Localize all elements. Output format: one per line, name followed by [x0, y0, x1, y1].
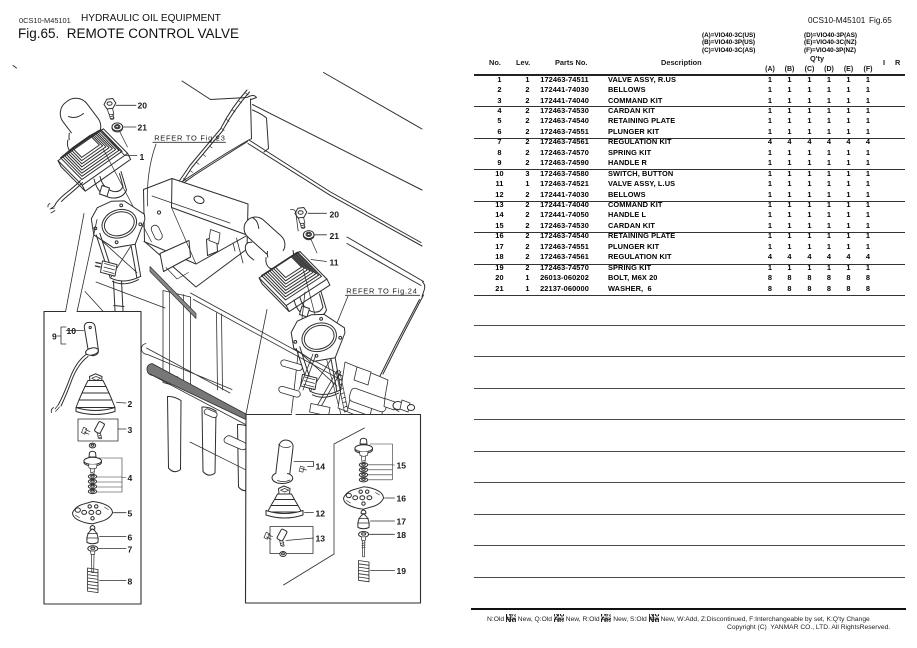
svg-text:5: 5 [128, 509, 133, 519]
svg-text:No: No [506, 614, 516, 622]
svg-text:REFER TO Fig.24: REFER TO Fig.24 [346, 287, 417, 296]
svg-text:7: 7 [128, 545, 133, 555]
svg-text:13: 13 [316, 534, 326, 544]
svg-text:2: 2 [128, 399, 133, 409]
svg-text:19: 19 [397, 566, 407, 576]
svg-text:15: 15 [397, 461, 407, 471]
svg-text:20: 20 [138, 101, 148, 111]
svg-text:14: 14 [316, 462, 326, 472]
svg-text:18: 18 [397, 530, 407, 540]
svg-text:REFER TO Fig.23: REFER TO Fig.23 [154, 134, 225, 143]
svg-text:No: No [649, 614, 659, 622]
svg-text:12: 12 [316, 509, 326, 519]
svg-text:8: 8 [128, 577, 133, 587]
svg-text:21: 21 [330, 231, 340, 241]
svg-text:1: 1 [140, 152, 145, 162]
svg-text:16: 16 [397, 494, 407, 504]
svg-text:9: 9 [52, 332, 57, 342]
svg-text:10: 10 [67, 326, 77, 336]
svg-text:6: 6 [128, 533, 133, 543]
svg-text:20: 20 [330, 209, 340, 219]
svg-text:3: 3 [128, 425, 133, 435]
svg-text:4: 4 [128, 473, 133, 483]
svg-text:21: 21 [138, 122, 148, 132]
svg-text:Yes: Yes [601, 614, 611, 622]
svg-text:17: 17 [397, 517, 407, 527]
svg-text:Yes: Yes [554, 614, 564, 622]
svg-text:11: 11 [330, 258, 339, 268]
